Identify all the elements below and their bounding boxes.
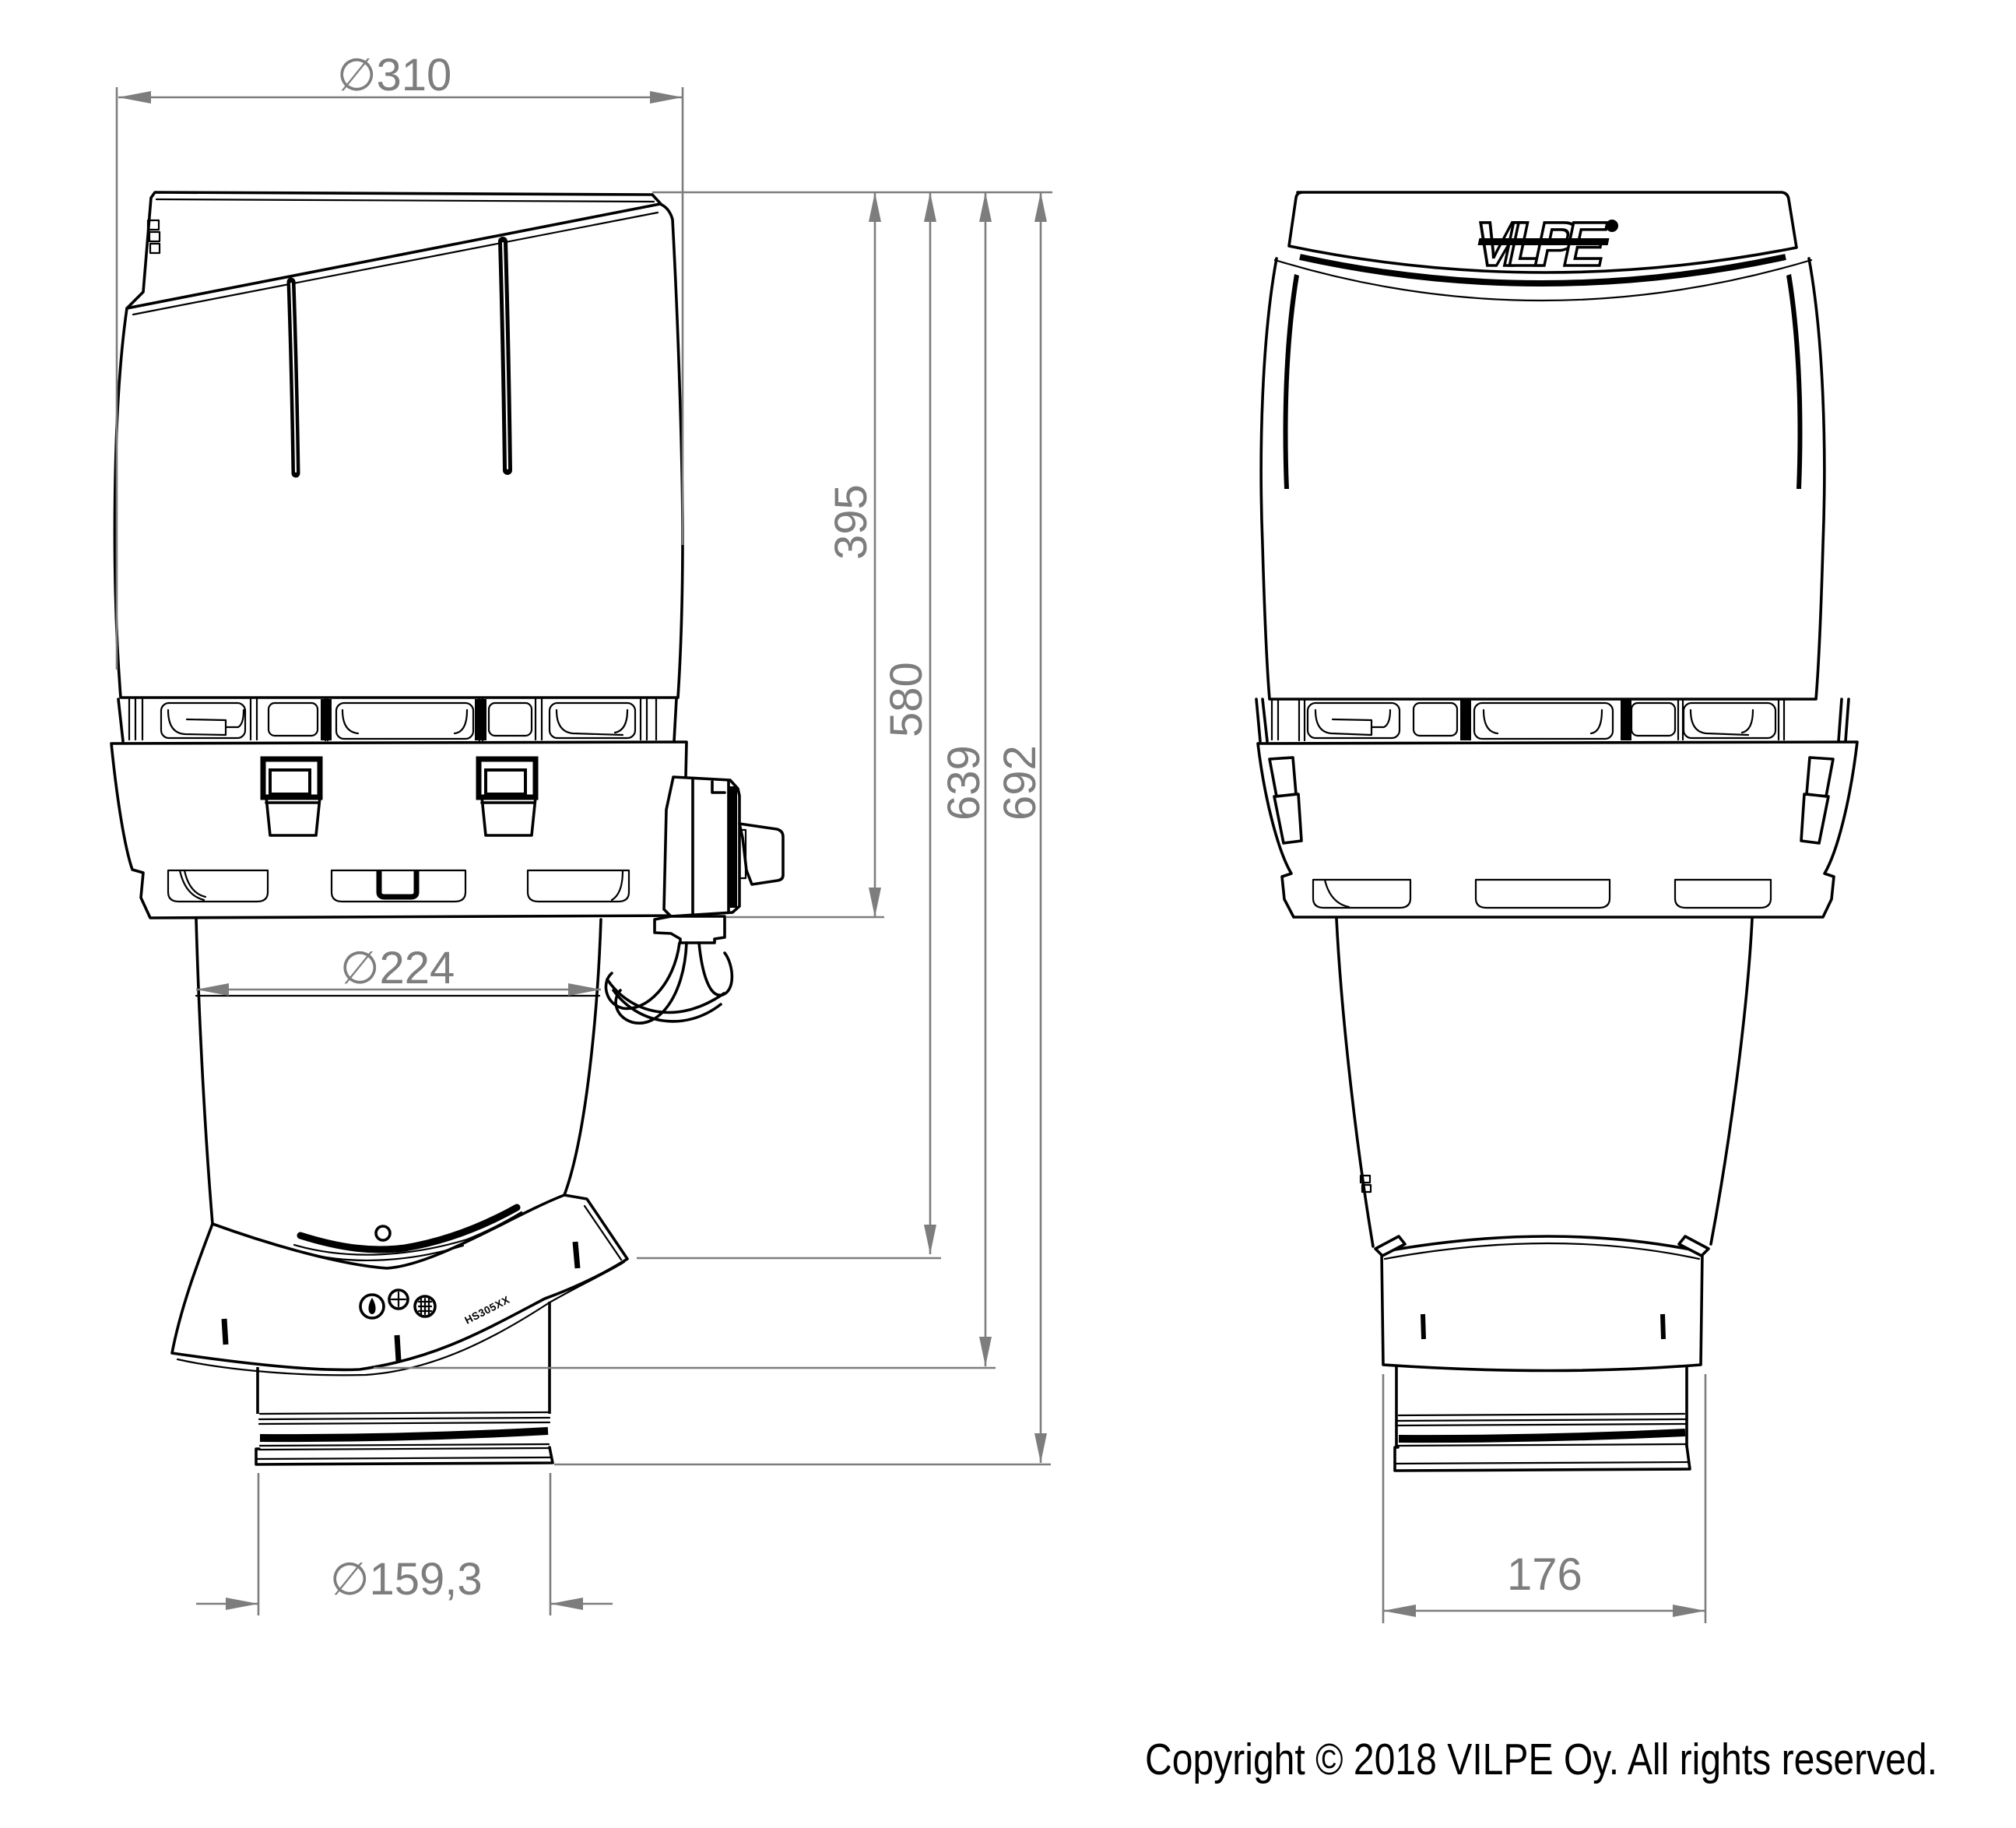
svg-text:176: 176	[1507, 1549, 1582, 1600]
svg-text:692: 692	[995, 745, 1045, 821]
svg-text:∅224: ∅224	[340, 943, 455, 993]
svg-text:∅310: ∅310	[337, 50, 451, 100]
svg-text:Copyright © 2018 VILPE Oy. All: Copyright © 2018 VILPE Oy. All rights re…	[1145, 1735, 1937, 1784]
svg-text:395: 395	[826, 484, 876, 560]
svg-text:580: 580	[881, 662, 932, 737]
svg-text:∅159,3: ∅159,3	[330, 1554, 483, 1605]
svg-text:639: 639	[939, 745, 989, 821]
